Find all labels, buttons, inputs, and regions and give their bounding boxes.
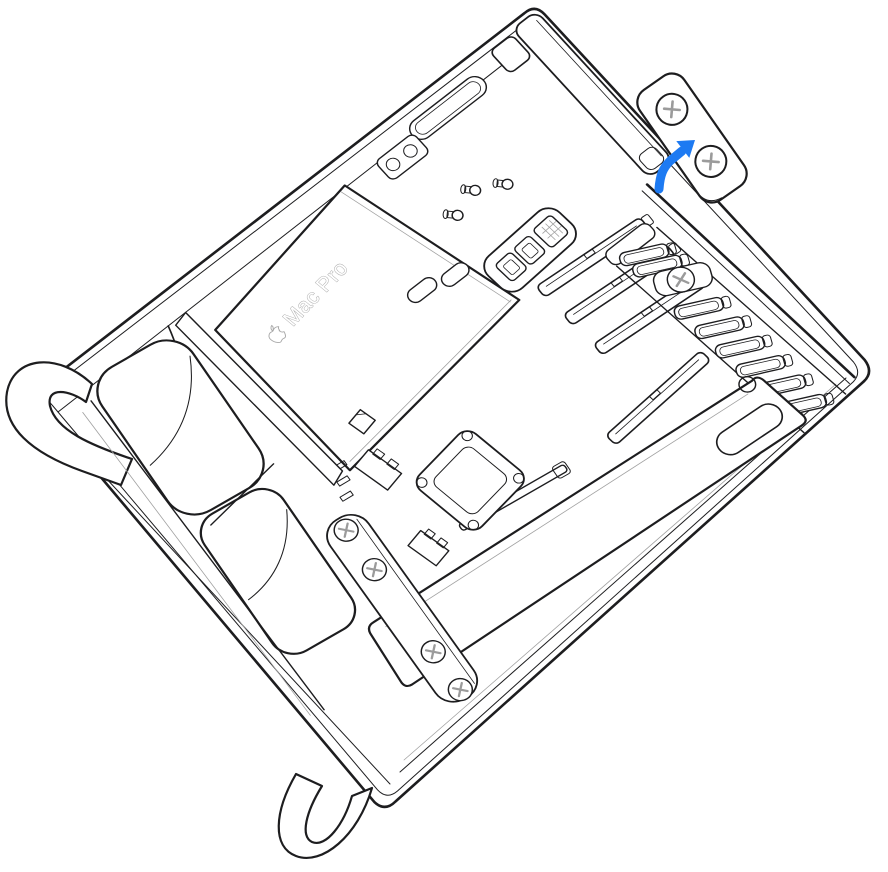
- illustration-svg: Mac Pro: [0, 0, 888, 872]
- support-foot-bottom: [279, 774, 372, 858]
- mac-pro-illustration: Mac Pro: [0, 0, 888, 872]
